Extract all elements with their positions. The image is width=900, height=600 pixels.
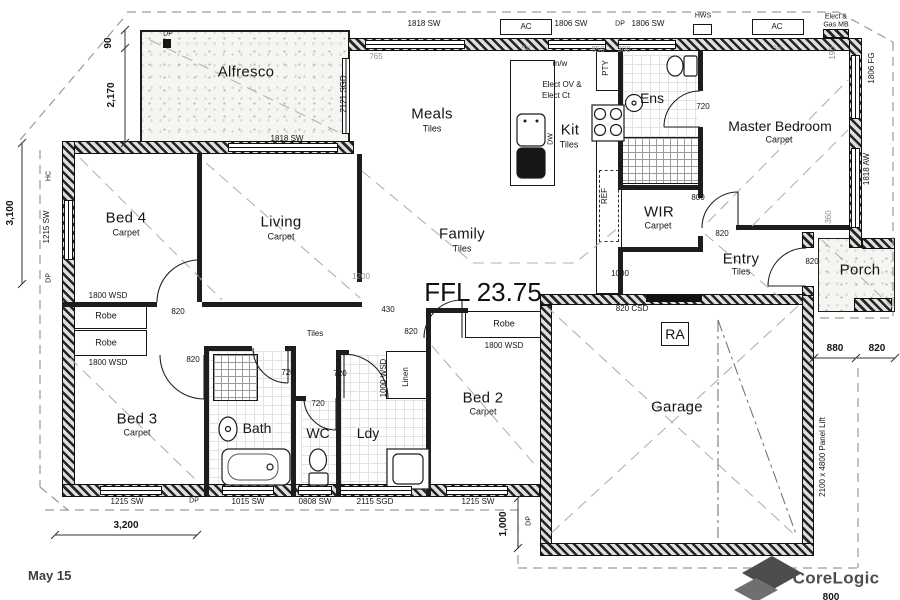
floor-label-kit: Tiles [560, 141, 579, 150]
door-820-bed2: 820 [404, 328, 417, 336]
floor-label-entry: Tiles [732, 268, 751, 277]
room-label-garage: Garage [651, 400, 703, 415]
door-820-bed3: 820 [186, 356, 199, 364]
code-1818sw-top: 1818 SW [408, 20, 441, 28]
dim-1000-entry: 1000 [611, 270, 629, 278]
room-label-bed4: Bed 4 [106, 211, 147, 226]
dim-3100: 3,100 [6, 200, 16, 225]
microwave-label: m/w [553, 60, 568, 68]
dim-190: 190 [829, 46, 837, 59]
opening-800-wir: 800 [691, 194, 704, 202]
code-1806sw-a: 1806 SW [555, 20, 588, 28]
window-1015sw-bottom [222, 486, 274, 495]
hc-label: HC [46, 171, 53, 181]
room-label-living: Living [261, 215, 302, 230]
room-label-porch: Porch [840, 263, 881, 278]
code-1818sw-wing: 1818 SW [271, 135, 304, 143]
dp-label-left: DP [46, 273, 53, 283]
pantry-label: PTY [602, 60, 610, 76]
room-label-ldy: Ldy [357, 426, 380, 440]
return-air-label: RA [665, 327, 684, 341]
robe-label-3: Robe [493, 320, 515, 329]
sv-label-2: SV [772, 46, 781, 53]
dp-label-garage: DP [526, 516, 533, 526]
code-1806sw-b: 1806 SW [632, 20, 665, 28]
room-label-master: Master Bedroom [728, 119, 831, 133]
elect-label-1: Elect OV & [542, 81, 581, 89]
dim-765: 765 [369, 53, 382, 61]
robe-label-1: Robe [95, 312, 117, 321]
code-wsd1000: 1000 WSD [380, 359, 388, 398]
meter-label-2: Gas MB [823, 22, 848, 29]
meter-label-1: Elect & [825, 14, 847, 21]
dishwasher-label: DW [548, 133, 555, 145]
window-1215sw-bottom-b [446, 486, 508, 495]
door-2115sgd-bottom [340, 486, 412, 495]
room-label-entry: Entry [723, 252, 760, 267]
door-820-master: 820 [715, 230, 728, 238]
window-1215sw-left [64, 200, 73, 260]
floor-label-master: Carpet [765, 136, 792, 145]
code-wsd1800-a: 1800 WSD [89, 292, 128, 300]
elect-label-2: Elect Ct [542, 92, 570, 100]
dim-880: 880 [827, 344, 844, 354]
room-label-bed2: Bed 2 [463, 391, 504, 406]
robe-label-2: Robe [95, 339, 117, 348]
floor-plan: Alfresco Meals Tiles Kit Tiles Ens Maste… [0, 0, 900, 600]
window-1818sw-wing [228, 143, 338, 152]
room-label-meals: Meals [411, 107, 453, 122]
floor-label-meals: Tiles [423, 125, 442, 134]
code-wsd1800-b: 1800 WSD [89, 359, 128, 367]
dim-1200: 1200 [352, 273, 370, 281]
garage-dashdot-lines [718, 320, 796, 538]
window-1215sw-bottom-a [100, 486, 162, 495]
dim-300: 300 [617, 46, 630, 54]
door-720-ens: 720 [696, 103, 709, 111]
code-2115sgd: 2115 SGD [357, 498, 394, 506]
room-label-kit: Kit [561, 123, 579, 138]
linen-label: Linen [402, 367, 410, 387]
dim-3200: 3,200 [113, 521, 138, 531]
door-swing-arcs [157, 91, 806, 430]
dp-label-alfresco: DP [163, 31, 173, 38]
dim-360: 360 [825, 210, 833, 223]
code-2121sgd: 2121 SGD [340, 75, 348, 112]
room-label-bath: Bath [243, 421, 272, 435]
code-1215sw-bottom-a: 1215 SW [111, 498, 144, 506]
code-1215sw-left: 1215 SW [43, 211, 51, 244]
ac-label-1: AC [520, 23, 531, 31]
floor-label-bed4: Carpet [112, 229, 139, 238]
room-label-wc: WC [306, 426, 329, 440]
window-0808sw-bottom [298, 486, 332, 495]
corelogic-wordmark: CoreLogic [793, 570, 880, 587]
floor-label-wir: Carpet [644, 222, 671, 231]
floor-label-bed2: Carpet [469, 408, 496, 417]
date-label: May 15 [28, 568, 71, 583]
floor-label-hall: Tiles [307, 330, 324, 338]
ac-label-2: AC [771, 23, 782, 31]
dim-2170: 2,170 [107, 82, 117, 107]
room-label-family: Family [439, 227, 485, 242]
window-1818sw-top [365, 40, 465, 49]
room-label-alfresco: Alfresco [218, 65, 275, 80]
dp-label-bottom: DP [189, 498, 199, 505]
door-720-bath: 720 [281, 369, 294, 377]
ffl-label: FFL 23.75 [424, 279, 542, 305]
floor-label-bed3: Carpet [123, 429, 150, 438]
door-820csd-garage: 820 CSD [616, 305, 648, 313]
window-1806fg-right [851, 55, 860, 119]
room-label-wir: WIR [644, 205, 674, 220]
dim-820: 820 [869, 344, 886, 354]
garage-panel-lift-label: 2100 x 4800 Panel Lift [819, 417, 827, 497]
code-wsd1800-c: 1800 WSD [485, 342, 524, 350]
door-720-wc: 720 [311, 400, 324, 408]
door-820-entry: 820 [805, 258, 818, 266]
door-820-bed4: 820 [171, 308, 184, 316]
dim-90: 90 [104, 37, 114, 48]
floor-label-family: Tiles [453, 245, 472, 254]
dp-label-top: DP [615, 21, 625, 28]
code-1015sw: 1015 SW [232, 498, 265, 506]
hws-label: HWS [695, 13, 711, 20]
dim-850: 850 [591, 46, 604, 54]
window-1818aw-right [851, 148, 860, 228]
code-1818aw: 1818 AW [863, 153, 871, 185]
door-720-ldy: 720 [333, 370, 346, 378]
floor-label-living: Carpet [267, 233, 294, 242]
room-label-ens: Ens [640, 91, 664, 105]
code-0808sw: 0808 SW [299, 498, 332, 506]
dim-800-bottom: 800 [823, 593, 840, 600]
dim-430: 430 [381, 306, 394, 314]
code-1806fg: 1806 FG [868, 52, 876, 83]
fridge-label: REF [601, 188, 609, 204]
dim-1000-garage: 1,000 [499, 511, 509, 536]
code-1215sw-bottom-b: 1215 SW [462, 498, 495, 506]
sv-label-1: SV [521, 46, 530, 53]
room-label-bed3: Bed 3 [117, 412, 158, 427]
